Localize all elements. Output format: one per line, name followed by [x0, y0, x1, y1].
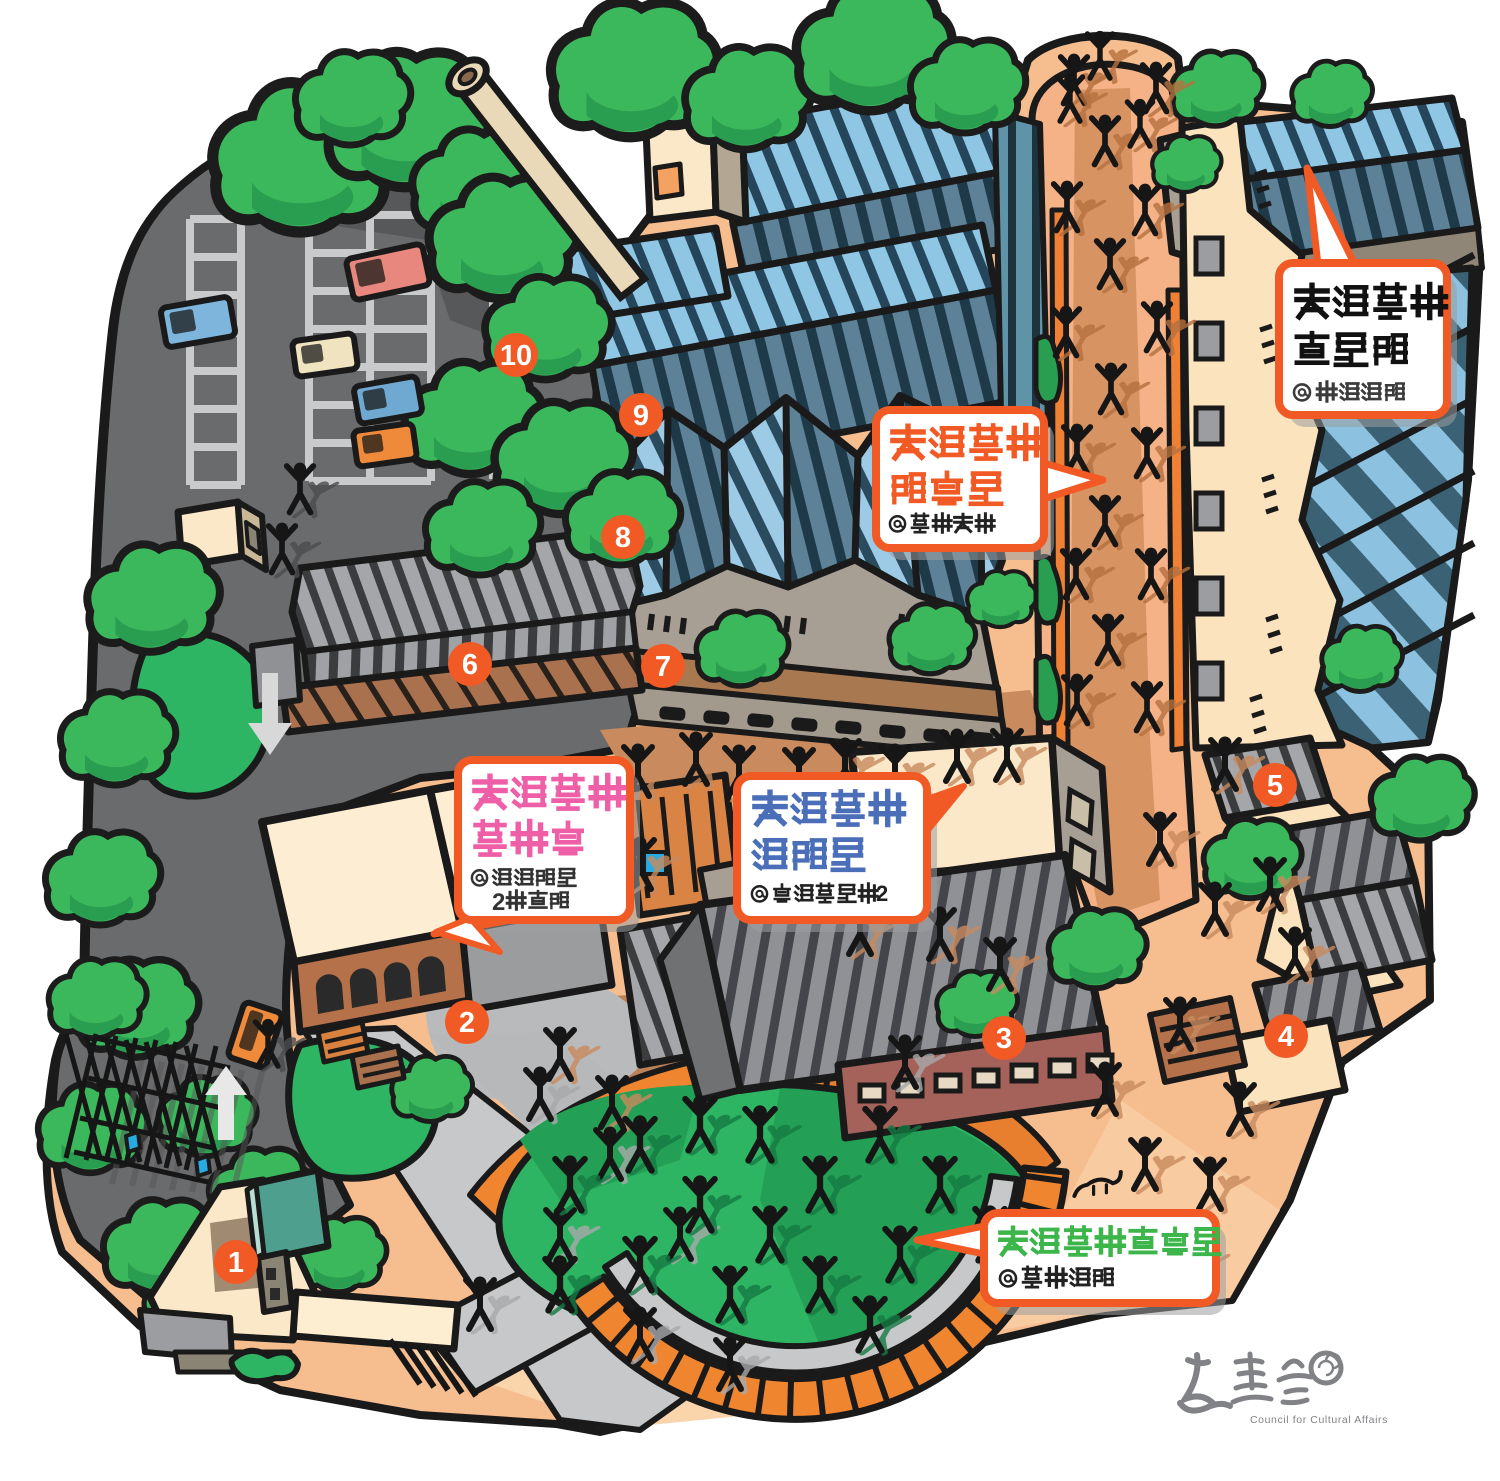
svg-text:Council for Cultural Affairs: Council for Cultural Affairs: [1250, 1414, 1388, 1426]
svg-text:2: 2: [459, 1007, 475, 1039]
svg-text:10: 10: [500, 340, 532, 372]
svg-text:2: 2: [492, 889, 505, 916]
svg-text:9: 9: [633, 400, 649, 432]
svg-text:1: 1: [228, 1247, 244, 1279]
svg-text:4: 4: [1278, 1021, 1294, 1053]
svg-text:7: 7: [655, 651, 671, 683]
svg-text:8: 8: [615, 522, 631, 554]
svg-text:5: 5: [1267, 770, 1283, 802]
svg-text:6: 6: [462, 649, 478, 681]
svg-text:2: 2: [876, 881, 888, 906]
svg-text:3: 3: [996, 1023, 1012, 1055]
